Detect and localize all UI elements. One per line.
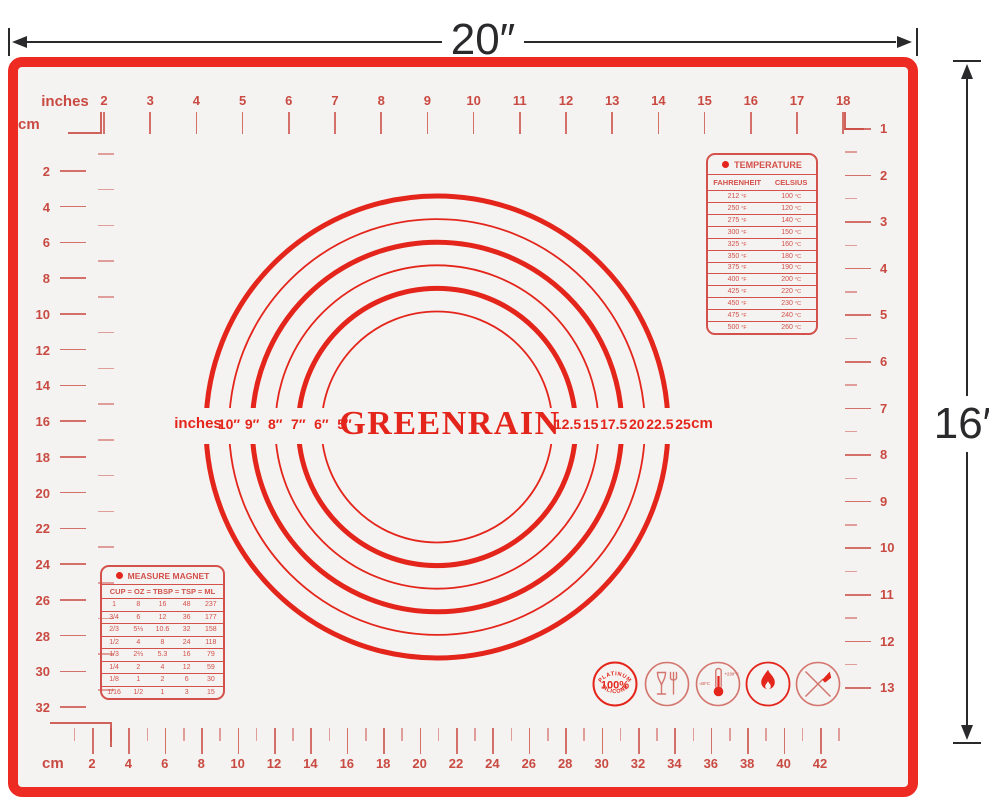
measure-columns-text: CUP = OZ = TBSP = TSP = ML [110, 587, 215, 596]
right-ruler-tick [845, 361, 871, 363]
height-dimension: 16″ [948, 60, 984, 744]
bottom-ruler-tick [784, 728, 786, 754]
right-ruler-tick [845, 221, 871, 223]
bottom-ruler-number: 16 [335, 757, 359, 770]
no-knife-icon [794, 660, 842, 708]
right-ruler-number: 11 [880, 588, 906, 601]
bottom-ruler-minor-tick [110, 728, 112, 741]
top-ruler-number: 13 [600, 94, 624, 107]
right-ruler-minor-tick [845, 664, 857, 666]
left-ruler-number: 12 [20, 344, 50, 357]
platinum-silicone-badge: PLATINUM 100% SILICONE [591, 660, 639, 708]
right-ruler-minor-tick [845, 617, 857, 619]
temperature-row: 500 °F260 °C [708, 321, 816, 333]
bottom-ruler-number: 20 [408, 757, 432, 770]
bottom-ruler-minor-tick [765, 728, 767, 741]
right-ruler-tick [845, 501, 871, 503]
bottom-ruler-number: 8 [189, 757, 213, 770]
left-ruler-number: 26 [20, 594, 50, 607]
left-ruler-tick [60, 599, 86, 601]
bottom-ruler-minor-tick [620, 728, 622, 741]
temperature-row: 325 °F160 °C [708, 238, 816, 250]
left-ruler-minor-tick [98, 260, 114, 262]
bottom-ruler-unit-label: cm [42, 756, 76, 771]
measure-row: 2/35⅓10.632158 [102, 623, 223, 636]
left-ruler-minor-tick [98, 511, 114, 513]
right-ruler-minor-tick [845, 478, 857, 480]
bottom-ruler-minor-tick [802, 728, 804, 741]
right-ruler-minor-tick [845, 571, 857, 573]
bottom-ruler-number: 40 [772, 757, 796, 770]
measure-column-headers: CUP = OZ = TBSP = TSP = ML [102, 585, 223, 599]
top-ruler-tick [519, 112, 521, 134]
top-ruler-number: 14 [646, 94, 670, 107]
temperature-row: 400 °F200 °C [708, 273, 816, 285]
measure-row: 1/812630 [102, 673, 223, 686]
bottom-ruler-number: 22 [444, 757, 468, 770]
bottom-ruler-minor-tick [74, 728, 76, 741]
left-ruler-unit-label: cm [18, 117, 44, 132]
left-ruler-number: 22 [20, 522, 50, 535]
left-ruler-tick [60, 242, 86, 244]
temperature-row: 212 °F100 °C [708, 191, 816, 202]
top-ruler-tick [842, 112, 844, 134]
right-ruler-minor-tick [845, 524, 857, 526]
right-ruler-number: 5 [880, 308, 906, 321]
left-ruler-minor-tick [98, 439, 114, 441]
right-ruler-number: 13 [880, 681, 906, 694]
bottom-ruler-tick [165, 728, 167, 754]
width-dimension: 20″ [8, 28, 918, 56]
temperature-table: TEMPERATURE FAHRENHEIT CELSIUS 212 °F100… [706, 153, 818, 335]
left-ruler-tick [60, 671, 86, 673]
bottom-ruler-number: 32 [626, 757, 650, 770]
right-ruler-minor-tick [845, 291, 857, 293]
right-ruler-number: 7 [880, 402, 906, 415]
bottom-ruler-tick [383, 728, 385, 754]
left-ruler-number: 30 [20, 665, 50, 678]
left-ruler-minor-tick [98, 475, 114, 477]
left-ruler-minor-tick [98, 225, 114, 227]
measure-row: 1/4241259 [102, 661, 223, 674]
bottom-ruler-number: 34 [662, 757, 686, 770]
bottom-ruler-tick [711, 728, 713, 754]
left-ruler-number: 14 [20, 379, 50, 392]
arrowhead-left-icon [12, 36, 27, 48]
right-ruler-number: 10 [880, 541, 906, 554]
bottom-ruler-minor-tick [474, 728, 476, 741]
left-ruler-tick [60, 492, 86, 494]
right-ruler-minor-tick [845, 338, 857, 340]
temperature-row: 450 °F230 °C [708, 297, 816, 309]
right-ruler-number: 3 [880, 215, 906, 228]
top-ruler-tick [658, 112, 660, 134]
dimension-endcap [916, 28, 918, 56]
top-ruler-unit-label: inches [34, 94, 96, 109]
right-ruler-tick [845, 175, 871, 177]
thermo-min-text: -40°C [699, 681, 710, 686]
bottom-ruler-tick [747, 728, 749, 754]
bottom-ruler-number: 6 [153, 757, 177, 770]
temperature-row: 275 °F140 °C [708, 214, 816, 226]
circle-cm-label: 25 [661, 415, 705, 433]
right-ruler-tick [845, 128, 871, 130]
right-ruler-number: 1 [880, 122, 906, 135]
bottom-ruler-number: 24 [480, 757, 504, 770]
left-ruler-minor-tick [98, 189, 114, 191]
left-ruler-tick [60, 456, 86, 458]
dimension-endcap [8, 28, 10, 56]
bottom-ruler-minor-tick [438, 728, 440, 741]
bottom-ruler-number: 36 [699, 757, 723, 770]
bottom-ruler-tick [529, 728, 531, 754]
food-safe-glass-fork-icon [643, 660, 691, 708]
right-ruler-minor-tick [845, 151, 857, 153]
left-ruler-tick [60, 420, 86, 422]
left-ruler-minor-tick [98, 546, 114, 548]
right-ruler-minor-tick [845, 384, 857, 386]
top-ruler-tick [288, 112, 290, 134]
top-ruler-number: 7 [323, 94, 347, 107]
arrowhead-right-icon [897, 36, 912, 48]
top-ruler-number: 9 [415, 94, 439, 107]
left-ruler-number: 2 [20, 165, 50, 178]
left-ruler-number: 24 [20, 558, 50, 571]
left-ruler-number: 10 [20, 308, 50, 321]
bottom-ruler-tick [128, 728, 130, 754]
top-ruler-tick [334, 112, 336, 134]
left-ruler-number: 16 [20, 415, 50, 428]
top-ruler-number: 3 [138, 94, 162, 107]
temperature-table-title: TEMPERATURE [708, 155, 816, 175]
bottom-ruler-minor-tick [292, 728, 294, 741]
measure-row: 181648237 [102, 599, 223, 611]
left-ruler-tick [60, 170, 86, 172]
right-ruler-number: 12 [880, 635, 906, 648]
left-ruler-minor-tick [98, 332, 114, 334]
right-ruler-tick [845, 454, 871, 456]
right-ruler-minor-tick [845, 198, 857, 200]
top-ruler-tick [611, 112, 613, 134]
right-ruler-number: 2 [880, 169, 906, 182]
bottom-ruler-tick [820, 728, 822, 754]
ruler-corner-bottom-left [50, 722, 112, 747]
measure-row: 1/24824118 [102, 636, 223, 649]
left-ruler-minor-tick [98, 296, 114, 298]
right-ruler-tick [845, 268, 871, 270]
right-ruler-tick [845, 641, 871, 643]
left-ruler-number: 20 [20, 487, 50, 500]
bottom-ruler-number: 14 [298, 757, 322, 770]
top-ruler-number: 2 [92, 94, 116, 107]
temperature-row: 350 °F180 °C [708, 250, 816, 262]
top-ruler-number: 18 [831, 94, 855, 107]
bottom-ruler-tick [347, 728, 349, 754]
dimension-line [966, 452, 968, 725]
right-ruler-minor-tick [845, 245, 857, 247]
bottom-ruler-minor-tick [729, 728, 731, 741]
bottom-ruler-number: 38 [735, 757, 759, 770]
heat-resistant-flame-icon [744, 660, 792, 708]
bottom-ruler-tick [92, 728, 94, 754]
top-ruler-tick [565, 112, 567, 134]
product-image: 20″ 16″ inches cm cm 2345678910111213141… [0, 0, 989, 805]
bottom-ruler-minor-tick [401, 728, 403, 741]
ruler-corner-top-left [68, 112, 102, 134]
temperature-rows: 212 °F100 °C250 °F120 °C275 °F140 °C300 … [708, 191, 816, 333]
bottom-ruler-minor-tick [329, 728, 331, 741]
measure-title-text: MEASURE MAGNET [128, 571, 210, 581]
top-ruler-number: 11 [508, 94, 532, 107]
right-ruler-tick [845, 547, 871, 549]
left-ruler-number: 18 [20, 451, 50, 464]
left-ruler-number: 28 [20, 630, 50, 643]
temperature-row: 250 °F120 °C [708, 202, 816, 214]
bottom-ruler-tick [201, 728, 203, 754]
top-ruler-number: 17 [785, 94, 809, 107]
celsius-header: CELSIUS [766, 178, 816, 187]
left-ruler-tick [60, 206, 86, 208]
bottom-ruler-tick [565, 728, 567, 754]
right-ruler-number: 4 [880, 262, 906, 275]
baking-mat: inches cm cm 234567891011121314151617182… [8, 57, 918, 797]
measure-row: 1/32⅔5.31679 [102, 648, 223, 661]
right-ruler-tick [845, 314, 871, 316]
bottom-ruler-number: 30 [590, 757, 614, 770]
right-ruler-tick [845, 408, 871, 410]
measure-table-title: MEASURE MAGNET [102, 567, 223, 585]
top-ruler-tick [380, 112, 382, 134]
right-ruler-number: 6 [880, 355, 906, 368]
temperature-title-text: TEMPERATURE [734, 160, 802, 170]
thermo-max-text: +230°C [725, 672, 740, 677]
bullet-dot-icon [116, 572, 123, 579]
bottom-ruler-tick [602, 728, 604, 754]
left-ruler-number: 4 [20, 201, 50, 214]
dimension-line [966, 79, 968, 396]
top-ruler-number: 4 [184, 94, 208, 107]
bottom-ruler-number: 2 [80, 757, 104, 770]
temperature-row: 375 °F190 °C [708, 262, 816, 274]
top-ruler-number: 5 [231, 94, 255, 107]
bottom-ruler-minor-tick [365, 728, 367, 741]
bottom-ruler-minor-tick [693, 728, 695, 741]
dimension-line [524, 41, 896, 43]
bottom-ruler-minor-tick [219, 728, 221, 741]
temperature-row: 425 °F220 °C [708, 285, 816, 297]
bottom-ruler-minor-tick [838, 728, 840, 741]
measure-rows: 1816482373/4612361772/35⅓10.6321581/2482… [102, 599, 223, 698]
width-dimension-label: 20″ [444, 18, 522, 62]
dimension-endcap [953, 742, 981, 744]
bottom-ruler-number: 18 [371, 757, 395, 770]
right-ruler-tick [845, 594, 871, 596]
bottom-ruler-tick [420, 728, 422, 754]
temperature-range-icon: -40°C +230°C [694, 660, 742, 708]
left-ruler-tick [60, 528, 86, 530]
bottom-ruler-tick [638, 728, 640, 754]
fahrenheit-header: FAHRENHEIT [708, 178, 766, 187]
bullet-dot-icon [722, 161, 729, 168]
bottom-ruler-tick [238, 728, 240, 754]
top-ruler-number: 16 [739, 94, 763, 107]
bottom-ruler-minor-tick [183, 728, 185, 741]
right-ruler-tick [845, 687, 871, 689]
bottom-ruler-tick [456, 728, 458, 754]
left-ruler-tick [60, 563, 86, 565]
left-ruler-tick [60, 313, 86, 315]
dimension-endcap [953, 60, 981, 62]
bottom-ruler-tick [310, 728, 312, 754]
top-ruler-tick [149, 112, 151, 134]
bottom-ruler-minor-tick [256, 728, 258, 741]
top-ruler-number: 10 [462, 94, 486, 107]
top-ruler-tick [704, 112, 706, 134]
measure-row: 1/161/21315 [102, 686, 223, 699]
left-ruler-number: 32 [20, 701, 50, 714]
right-ruler-number: 8 [880, 448, 906, 461]
bottom-ruler-tick [674, 728, 676, 754]
top-ruler-tick [750, 112, 752, 134]
measure-table: MEASURE MAGNET CUP = OZ = TBSP = TSP = M… [100, 565, 225, 700]
dimension-line [27, 41, 442, 43]
temperature-column-headers: FAHRENHEIT CELSIUS [708, 175, 816, 191]
measure-row: 3/461236177 [102, 611, 223, 624]
bottom-ruler-number: 4 [116, 757, 140, 770]
bottom-ruler-number: 42 [808, 757, 832, 770]
bottom-ruler-tick [492, 728, 494, 754]
temperature-row: 475 °F240 °C [708, 309, 816, 321]
top-ruler-number: 8 [369, 94, 393, 107]
bottom-ruler-number: 28 [553, 757, 577, 770]
top-ruler-tick [196, 112, 198, 134]
left-ruler-tick [60, 277, 86, 279]
circle-inch-label: 5″ [323, 415, 367, 433]
left-ruler-minor-tick [98, 368, 114, 370]
bottom-ruler-minor-tick [147, 728, 149, 741]
bottom-ruler-minor-tick [547, 728, 549, 741]
top-ruler-number: 12 [554, 94, 578, 107]
temperature-row: 300 °F150 °C [708, 226, 816, 238]
left-ruler-tick [60, 349, 86, 351]
top-ruler-tick [427, 112, 429, 134]
top-ruler-tick [242, 112, 244, 134]
bottom-ruler-minor-tick [656, 728, 658, 741]
height-dimension-label: 16″ [926, 402, 989, 446]
left-ruler-minor-tick [98, 153, 114, 155]
top-ruler-number: 15 [693, 94, 717, 107]
top-ruler-tick [796, 112, 798, 134]
left-ruler-number: 8 [20, 272, 50, 285]
left-ruler-tick [60, 706, 86, 708]
left-ruler-minor-tick [98, 403, 114, 405]
top-ruler-tick [103, 112, 105, 134]
right-ruler-number: 9 [880, 495, 906, 508]
arrowhead-down-icon [961, 725, 973, 740]
bottom-ruler-tick [274, 728, 276, 754]
bottom-ruler-number: 26 [517, 757, 541, 770]
bottom-ruler-minor-tick [583, 728, 585, 741]
left-ruler-tick [60, 635, 86, 637]
left-ruler-tick [60, 385, 86, 387]
left-ruler-number: 6 [20, 236, 50, 249]
bottom-ruler-minor-tick [511, 728, 513, 741]
right-ruler-minor-tick [845, 431, 857, 433]
top-ruler-number: 6 [277, 94, 301, 107]
top-ruler-tick [473, 112, 475, 134]
bottom-ruler-number: 10 [226, 757, 250, 770]
bottom-ruler-number: 12 [262, 757, 286, 770]
arrowhead-up-icon [961, 64, 973, 79]
